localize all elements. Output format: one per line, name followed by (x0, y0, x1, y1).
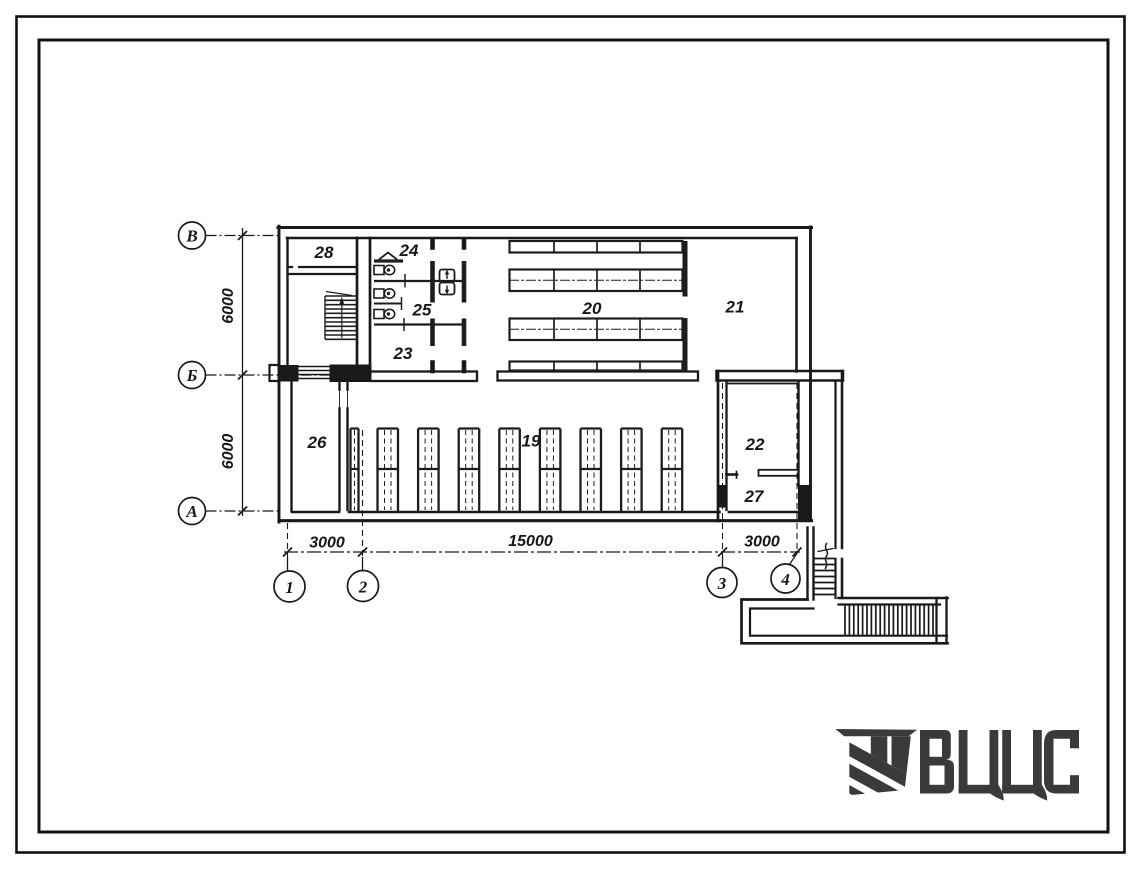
svg-text:В: В (185, 227, 197, 246)
svg-text:25: 25 (412, 301, 432, 320)
svg-text:6000: 6000 (220, 434, 237, 470)
svg-text:27: 27 (744, 487, 765, 506)
svg-text:Б: Б (186, 366, 198, 385)
svg-text:А: А (185, 502, 197, 521)
svg-text:2: 2 (358, 578, 368, 597)
svg-text:22: 22 (745, 435, 765, 454)
svg-text:15000: 15000 (508, 533, 553, 550)
svg-text:19: 19 (522, 432, 541, 451)
svg-text:1: 1 (285, 578, 294, 597)
svg-text:23: 23 (393, 344, 413, 363)
svg-text:20: 20 (582, 299, 602, 318)
svg-text:21: 21 (725, 298, 745, 317)
svg-text:26: 26 (307, 433, 327, 452)
svg-text:3000: 3000 (744, 534, 780, 551)
svg-text:3000: 3000 (309, 535, 345, 552)
svg-text:24: 24 (399, 241, 419, 260)
svg-text:6000: 6000 (220, 288, 237, 324)
svg-text:4: 4 (780, 570, 790, 589)
svg-text:3: 3 (717, 574, 727, 593)
svg-text:28: 28 (314, 243, 334, 262)
